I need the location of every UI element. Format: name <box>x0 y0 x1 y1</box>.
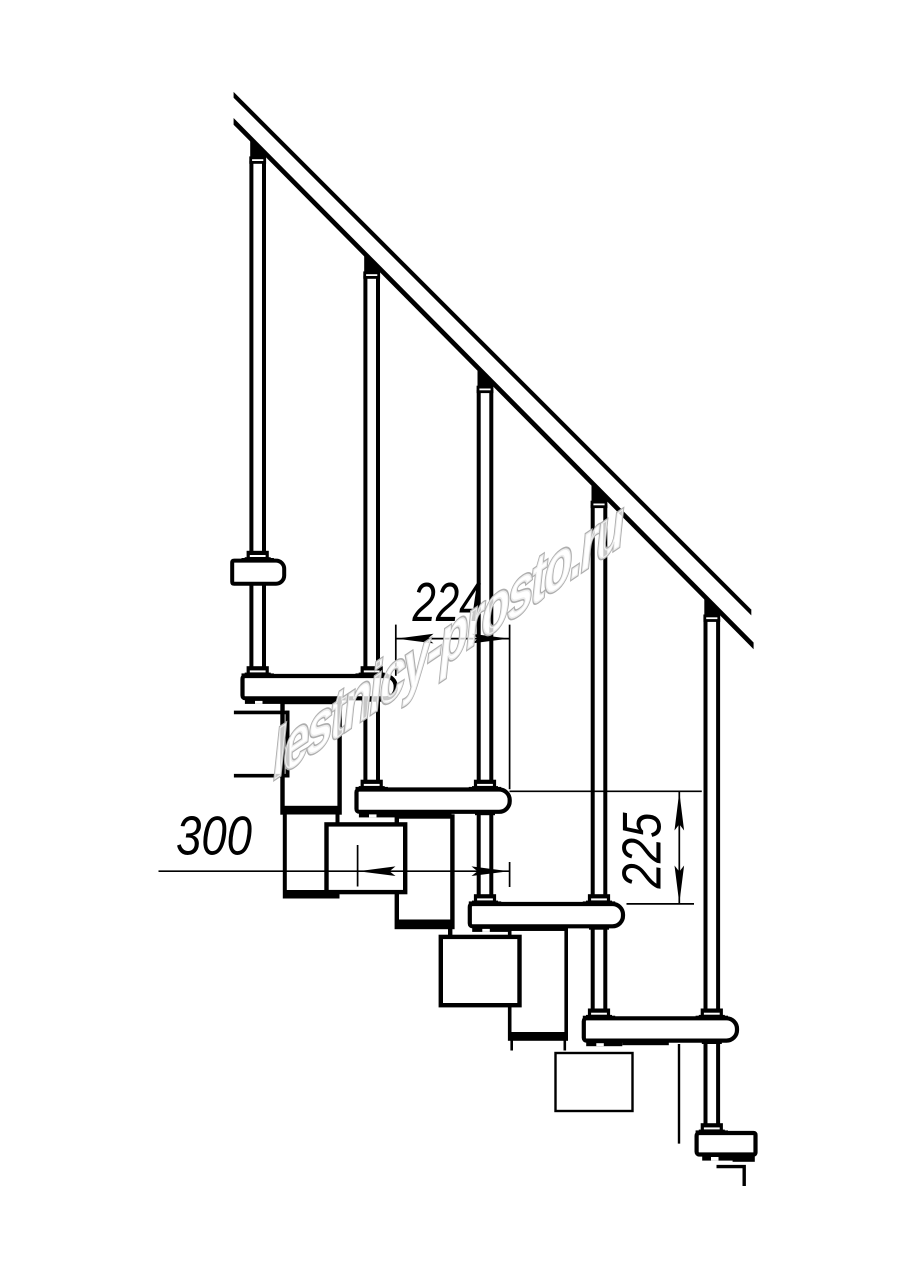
svg-text:225: 225 <box>611 812 673 889</box>
svg-text:300: 300 <box>176 805 252 867</box>
